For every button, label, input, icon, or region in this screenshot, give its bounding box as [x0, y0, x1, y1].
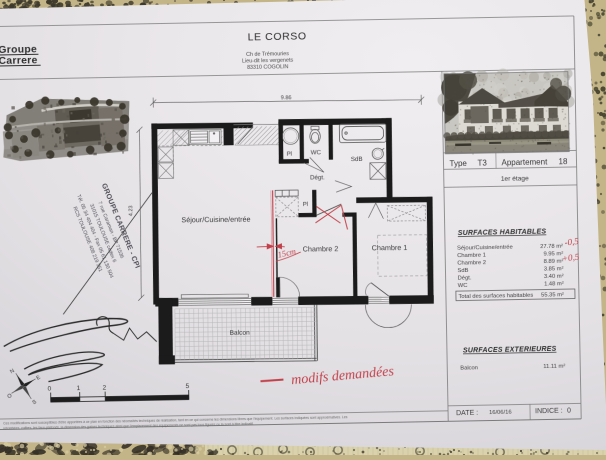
- svg-text:3.85 m²: 3.85 m²: [544, 266, 564, 272]
- svg-text:O: O: [7, 393, 14, 401]
- svg-text:8.89 m²: 8.89 m²: [544, 259, 564, 265]
- svg-text:27.78 m²: 27.78 m²: [540, 244, 563, 250]
- svg-text:INDICE :: INDICE :: [535, 408, 563, 416]
- svg-text:N: N: [9, 368, 16, 375]
- svg-text:Dégt.: Dégt.: [458, 275, 472, 281]
- svg-text:5: 5: [185, 383, 189, 390]
- svg-text:2: 2: [103, 385, 107, 392]
- svg-text:Balcon: Balcon: [230, 330, 251, 337]
- svg-text:83310 COGOLIN: 83310 COGOLIN: [247, 64, 289, 71]
- svg-text:Séjour/Cuisine/entrée: Séjour/Cuisine/entrée: [181, 215, 250, 225]
- svg-text:SdB: SdB: [457, 268, 468, 274]
- svg-text:4.23: 4.23: [128, 205, 134, 216]
- svg-text:Balcon: Balcon: [460, 365, 478, 371]
- svg-text:Pl: Pl: [287, 152, 292, 158]
- svg-text:T3: T3: [477, 159, 487, 168]
- svg-text:Pl: Pl: [303, 202, 308, 208]
- svg-text:11.11 m²: 11.11 m²: [543, 364, 565, 370]
- svg-text:SdB: SdB: [351, 156, 363, 163]
- svg-text:-0,5: -0,5: [564, 236, 580, 248]
- svg-text:Chambre 2: Chambre 2: [303, 244, 339, 253]
- svg-text:0: 0: [567, 408, 571, 415]
- svg-text:1: 1: [77, 385, 81, 392]
- svg-text:55.35 m²: 55.35 m²: [541, 292, 564, 298]
- svg-text:18: 18: [558, 157, 568, 166]
- svg-text:16/06/16: 16/06/16: [489, 410, 512, 416]
- svg-text:3.40 m²: 3.40 m²: [544, 274, 564, 280]
- svg-text:Total des surfaces habitables: Total des surfaces habitables: [458, 293, 533, 300]
- svg-text:Appartement: Appartement: [501, 157, 548, 167]
- svg-text:0: 0: [48, 386, 52, 393]
- svg-text:+0,5: +0,5: [561, 251, 580, 263]
- svg-text:SURFACES HABITABLES: SURFACES HABITABLES: [458, 228, 547, 237]
- svg-text:LE CORSO: LE CORSO: [248, 30, 307, 43]
- svg-text:DATE :: DATE :: [456, 410, 478, 417]
- svg-text:WC: WC: [458, 283, 468, 289]
- svg-text:S: S: [32, 399, 39, 406]
- svg-text:modifs demandées: modifs demandées: [291, 364, 396, 388]
- svg-text:WC: WC: [311, 149, 322, 156]
- svg-text:SURFACES EXTERIEURES: SURFACES EXTERIEURES: [463, 346, 557, 355]
- svg-text:Séjour/Cuisine/entrée: Séjour/Cuisine/entrée: [457, 245, 513, 252]
- svg-text:Dégt.: Dégt.: [310, 174, 325, 181]
- svg-text:Type: Type: [449, 159, 467, 168]
- svg-text:E: E: [35, 374, 42, 381]
- svg-text:1er étage: 1er étage: [501, 175, 529, 183]
- svg-text:9.86: 9.86: [281, 95, 292, 101]
- svg-text:1.48 m²: 1.48 m²: [544, 281, 564, 287]
- svg-text:9.95 m²: 9.95 m²: [543, 251, 563, 257]
- svg-text:Chambre 1: Chambre 1: [457, 252, 486, 259]
- svg-text:Chambre 2: Chambre 2: [457, 260, 486, 267]
- svg-text:Chambre 1: Chambre 1: [372, 243, 408, 252]
